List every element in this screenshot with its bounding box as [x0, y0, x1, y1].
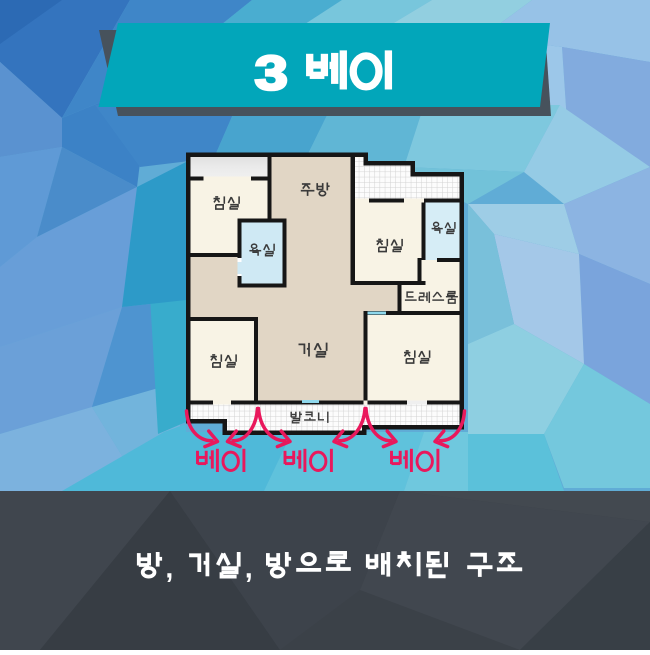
svg-text:,: , — [165, 552, 173, 584]
svg-text:3: 3 — [255, 46, 288, 100]
svg-text:,: , — [245, 552, 253, 584]
